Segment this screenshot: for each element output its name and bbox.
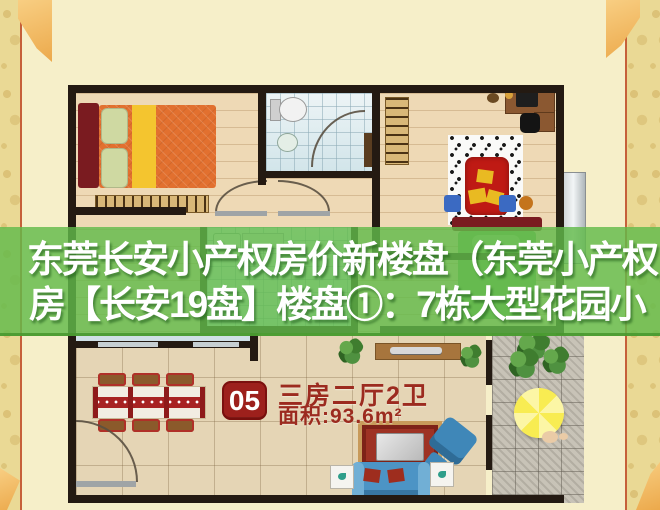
wall — [250, 333, 258, 361]
door-sill — [278, 211, 330, 216]
balcony-plant — [508, 347, 540, 379]
promo-image: 东莞长安小产权房价新楼盘（东莞小产权 房【长安19盘】楼盘①：7栋大型花园小 0… — [0, 0, 660, 510]
side-table — [430, 462, 454, 487]
dining-chair — [166, 373, 194, 386]
window — [98, 342, 158, 347]
person-hand — [559, 433, 568, 440]
wall — [258, 85, 266, 185]
table-plant — [338, 473, 346, 480]
pillow — [101, 108, 128, 144]
potted-plant — [338, 337, 364, 365]
computer — [516, 91, 538, 107]
window — [193, 342, 239, 347]
door-sill — [215, 211, 267, 216]
dining-table — [92, 386, 206, 419]
unit-number-badge: 05 — [222, 381, 267, 420]
unit-area-label: 面积:93.6m² — [278, 400, 403, 430]
balcony-plant — [542, 345, 570, 375]
sofa-pillow — [363, 468, 381, 483]
sink — [277, 133, 298, 152]
headline-line1: 东莞长安小产权房价新楼盘（东莞小产权 — [27, 240, 657, 280]
wall — [68, 207, 186, 215]
bathroom-door-panel — [364, 133, 372, 167]
entry-door-sill — [72, 481, 136, 487]
dining-chair — [98, 373, 126, 386]
dining-chair — [166, 419, 194, 432]
headline-band: 东莞长安小产权房价新楼盘（东莞小产权 房【长安19盘】楼盘①：7栋大型花园小 — [0, 227, 660, 336]
side-table — [330, 465, 354, 489]
parasol — [514, 388, 564, 438]
dining-chair — [132, 419, 160, 432]
headline-line2: 房【长安19盘】楼盘①：7栋大型花园小 — [29, 285, 645, 325]
toilet-bowl — [279, 97, 307, 122]
yellow-cushion — [468, 188, 487, 205]
tv — [390, 347, 442, 354]
coffee-table — [376, 433, 424, 461]
table-plant — [438, 471, 446, 478]
bed-runner — [132, 105, 156, 188]
table-band — [128, 387, 133, 418]
table-band — [164, 387, 169, 418]
study-rug — [385, 97, 409, 165]
yellow-cushion — [476, 169, 494, 184]
wall — [266, 171, 380, 178]
potted-plant — [460, 343, 482, 369]
wall — [486, 415, 492, 470]
corner-tab-top-left — [18, 0, 52, 62]
wall — [68, 85, 564, 93]
desk-ornament — [487, 93, 499, 103]
round-cushion — [519, 196, 533, 210]
table-band — [93, 387, 98, 418]
wall — [486, 340, 492, 385]
table-runner — [93, 397, 205, 408]
table-band — [200, 387, 205, 418]
desk-chair — [520, 113, 540, 133]
person — [542, 431, 558, 443]
blue-cushion — [499, 195, 516, 212]
sofa-pillow — [387, 468, 405, 483]
blue-cushion — [444, 195, 461, 212]
pillow — [101, 148, 128, 188]
wall — [68, 495, 564, 503]
dining-chair — [132, 373, 160, 386]
bed-headboard — [78, 103, 99, 188]
